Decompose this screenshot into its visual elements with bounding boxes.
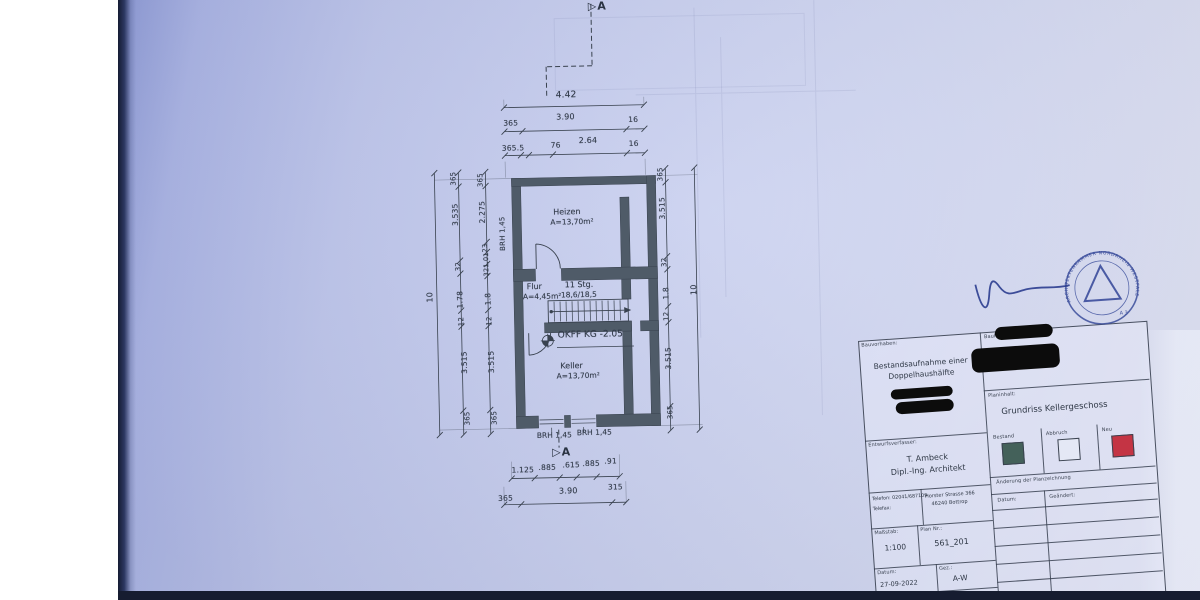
room-area-heizen: A=13,70m² [550,217,593,227]
stair-count-label: 11 Stg. [565,280,594,290]
dim-label: 3.515 [664,347,673,370]
dim-label: 3.90 [556,112,575,121]
brh-label-bottom-left: BRH 1,45 [537,430,572,440]
dim-label: .885 [538,463,556,472]
dim-label: 365 [498,494,513,503]
stamp-triangle-logo [1082,265,1120,301]
room-area-flur: A=4,45m² [523,291,562,301]
dim-label: 2.64 [579,136,598,145]
room-name-flur: Flur [527,282,542,291]
dim-label: 12 [485,316,493,325]
dim-label: 365 [449,172,457,186]
white-margin [0,0,118,600]
photographed-floor-plan: ▷A ▷A Heizen A=13,70m² Flur A=4,45m² 11 … [0,0,1200,600]
stamp-note: A 3 [1120,310,1129,317]
dim-label: 12 [457,317,465,326]
dim-label: 3.515 [657,197,666,220]
room-name-heizen: Heizen [553,207,581,217]
dim-label: .885 [582,459,600,468]
section-marker-top: ▷A [588,0,607,13]
dim-label: 315 [608,482,623,491]
dim-label: 1.78 [455,291,464,309]
dim-label: 365.5 [502,143,525,152]
legend-abbruch-swatch [1057,438,1080,461]
dim-label: 365 [503,118,518,127]
dim-left-total: 10 [425,292,434,303]
dim-label: 32 [454,262,462,271]
dim-label: 1.125 [511,465,534,474]
dim-right-total: 10 [689,284,698,295]
brh-label-left: BRH 1,45 [498,216,507,251]
title-block: Bauvorhaben: Bestandsaufnahme einer Dopp… [858,321,1166,600]
dim-label: 365 [666,405,674,419]
bleed-through-lines [554,0,863,420]
brh-label-bottom-right: BRH 1,45 [577,427,612,437]
photo-bottom-edge [110,591,1200,600]
dim-label: 32 [660,258,668,267]
dim-label: 76 [551,140,561,149]
stair [548,299,631,323]
dim-label: 12 [662,312,670,321]
legend-bestand-swatch [1001,442,1024,465]
dim-label: 365 [656,167,664,181]
level-label: OKFF KG -2.05 [558,329,623,340]
stair-rise-run-label: 18,6/18,5 [561,290,597,300]
dim-label: 3.515 [460,351,469,374]
dim-label: 1.01 [482,252,490,267]
dim-label: 1.8 [483,293,492,306]
dim-label: 365 [463,411,471,425]
dim-label: .91 [604,456,617,465]
dim-label: .615 [562,460,580,469]
dim-label: 2.275 [477,201,486,224]
dim-label: 365 [490,411,498,425]
legend-neu-swatch [1111,434,1134,457]
dim-label: 365 [476,173,484,187]
signature [975,276,1071,308]
dim-label: 16 [628,115,638,124]
legend-neu-label: Neu [1102,426,1113,433]
scale-value: 1:100 [884,542,906,552]
gez-label: Gez.: [939,565,953,572]
section-marker-bottom: ▷A [552,445,571,458]
dim-label: 23 [481,244,489,253]
door-arc-heizen [536,244,561,269]
drawn-by: A-W [952,573,967,583]
room-area-keller: A=13,70m² [556,371,599,381]
dim-label: 3.515 [487,351,496,374]
room-name-keller: Keller [560,361,583,370]
dim-label: 1.8 [661,287,670,300]
dim-label: 16 [629,139,639,148]
dim-label: 3.535 [450,203,459,226]
dim-top-total: 4.42 [556,90,577,100]
walls [511,175,660,428]
dim-label: 32 [482,268,490,277]
dim-label: 3.90 [559,486,578,495]
